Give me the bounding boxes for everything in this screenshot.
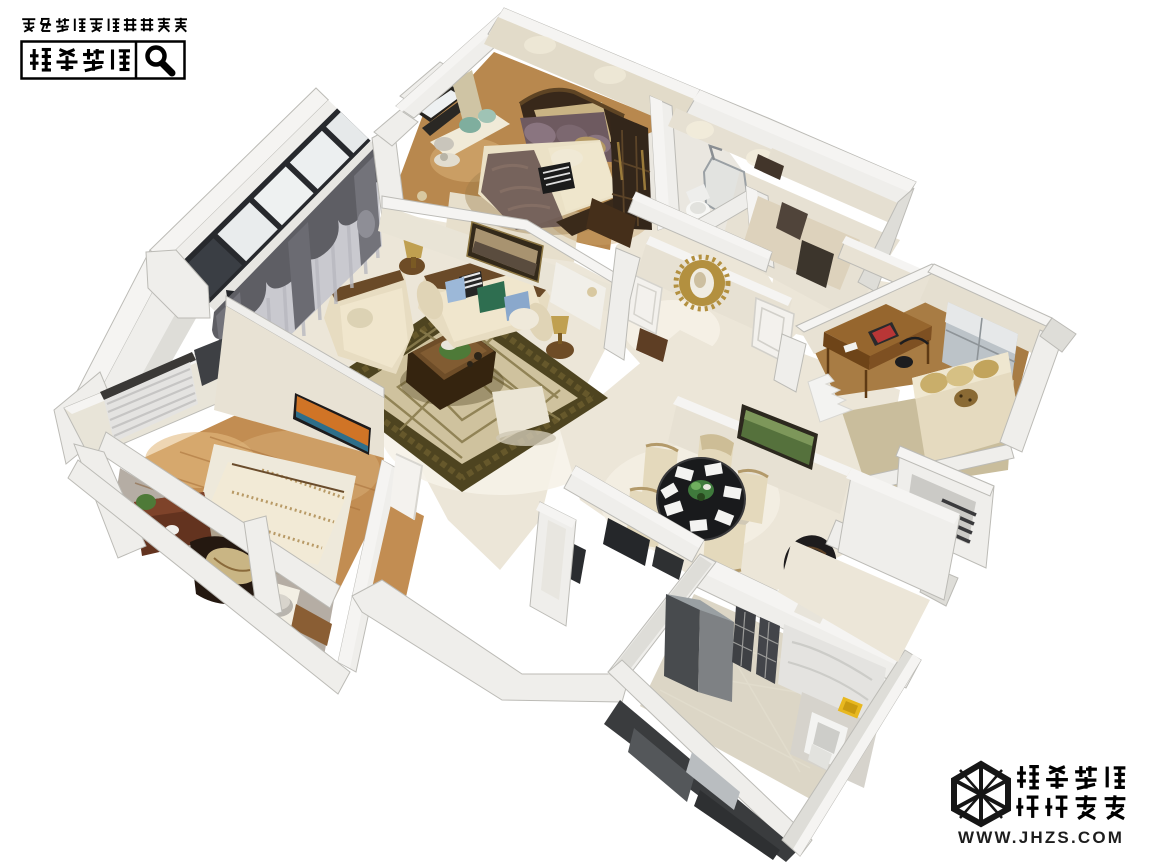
svg-text:WWW.JHZS.COM: WWW.JHZS.COM (958, 828, 1124, 847)
